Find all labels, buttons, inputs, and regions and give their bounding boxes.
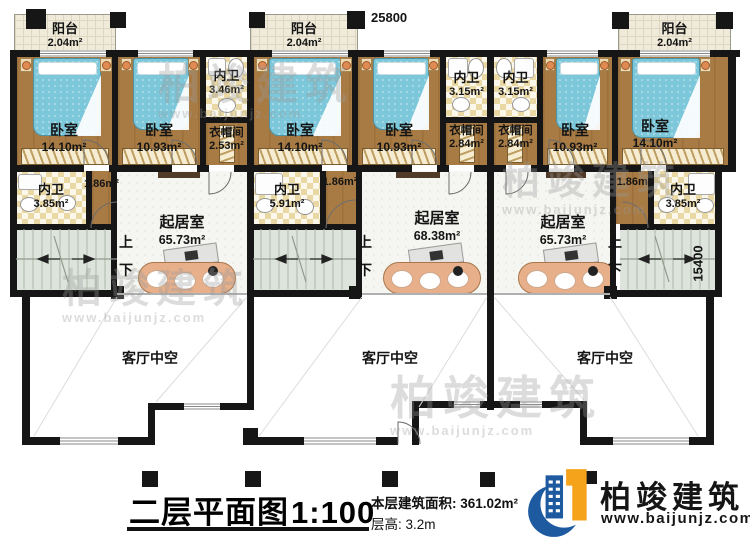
stairs-up-label: 上 bbox=[358, 232, 372, 252]
stairs-up-label: 上 bbox=[608, 232, 622, 252]
bedroom2-label-middle: 卧室10.93m² bbox=[360, 122, 438, 154]
company-logo-icon bbox=[523, 463, 601, 539]
dimension-right: 15400 bbox=[691, 234, 706, 294]
closet-label-right: 衣帽间2.84m² bbox=[490, 124, 541, 152]
bath-top-label-left: 内卫3.46m² bbox=[204, 68, 249, 97]
bedroom2-label-right: 卧室10.93m² bbox=[543, 122, 607, 154]
closet-label-middle: 衣帽间2.84m² bbox=[442, 124, 491, 152]
bath-mid-label-right: 内卫3.85m² bbox=[652, 182, 714, 211]
title-underline bbox=[127, 527, 369, 531]
living-label-middle: 起居室68.38m² bbox=[397, 210, 477, 244]
company-website: www.baijunjz.com bbox=[601, 510, 750, 527]
stairs-down-label: 下 bbox=[119, 260, 133, 280]
floor-height-row: 层高: 3.2m bbox=[371, 513, 436, 533]
bath-top-label-right: 内卫3.15m² bbox=[492, 70, 539, 99]
void-label-left: 客厅中空 bbox=[105, 350, 195, 368]
dimension-top: 25800 bbox=[371, 10, 407, 25]
bedroom1-label-left: 卧室14.10m² bbox=[24, 122, 104, 154]
stairs-down-label: 下 bbox=[608, 260, 622, 280]
floor-area-row: 本层建筑面积: 361.02m² bbox=[371, 492, 518, 512]
sheet-scale: 1:100 bbox=[291, 495, 375, 530]
bath-mid-label-middle: 内卫5.91m² bbox=[255, 182, 319, 211]
balcony-label: 阳台2.04m² bbox=[618, 21, 731, 50]
closet-label-left: 衣帽间2.53m² bbox=[202, 126, 251, 154]
sheet-title: 二层平面图1:100 bbox=[129, 487, 375, 532]
hall-area-label-right: 1.86m² bbox=[614, 176, 654, 189]
hall-area-label-left: 1.86m² bbox=[84, 178, 118, 191]
living-label-right: 起居室65.73m² bbox=[523, 214, 603, 248]
void-label-middle: 客厅中空 bbox=[345, 350, 435, 368]
balcony-label: 阳台2.04m² bbox=[14, 21, 116, 50]
hall-area-label-middle: 1.86m² bbox=[320, 176, 360, 189]
stairs-down-label: 下 bbox=[358, 260, 372, 280]
living-label-left: 起居室65.73m² bbox=[142, 214, 222, 248]
bedroom1-label-right: 卧室14.10m² bbox=[612, 118, 698, 150]
balcony-label: 阳台2.04m² bbox=[250, 21, 358, 50]
bedroom2-label-left: 卧室10.93m² bbox=[122, 122, 196, 154]
bedroom1-label-middle: 卧室14.10m² bbox=[258, 122, 342, 154]
plan-linework bbox=[0, 0, 750, 541]
bath-mid-label-left: 内卫3.85m² bbox=[18, 182, 84, 211]
void-label-right: 客厅中空 bbox=[560, 350, 650, 368]
floor-plan-sheet: 阳台2.04m² 阳台2.04m² 阳台2.04m² 卧室14.10m² 卧室1… bbox=[0, 0, 750, 541]
stairs-up-label: 上 bbox=[119, 232, 133, 252]
bath-top-label-middle: 内卫3.15m² bbox=[444, 70, 489, 99]
